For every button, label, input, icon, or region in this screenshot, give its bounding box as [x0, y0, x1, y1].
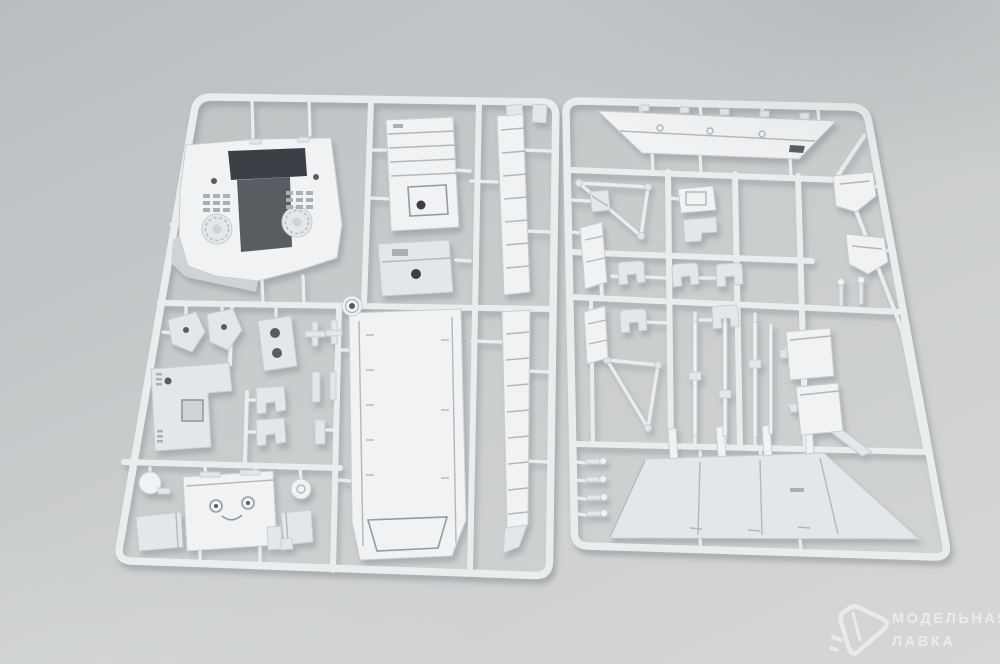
engine-deck-part: [386, 117, 459, 231]
hull-opening: [228, 148, 307, 180]
vent-grid-left: [203, 194, 230, 212]
photo-of-model-kit-sprues: МОДЕЛЬНАЯ ЛАВКА: [0, 0, 1000, 664]
watermark-line1: МОДЕЛЬНАЯ: [892, 611, 1000, 627]
watermark-line2: ЛАВКА: [892, 634, 955, 650]
junction-box-part: [590, 190, 610, 212]
watermark: МОДЕЛЬНАЯ ЛАВКА: [831, 606, 1000, 653]
left-sprue: [119, 97, 556, 576]
corner-block-part: [532, 104, 547, 123]
access-panel-part: [378, 240, 453, 296]
scene-canvas: МОДЕЛЬНАЯ ЛАВКА: [0, 0, 1000, 664]
vent-grid-right: [286, 191, 313, 209]
paper-plane-icon: [831, 606, 887, 653]
hull-bottom-part: [349, 309, 466, 560]
right-sprue: [566, 101, 946, 557]
fan-grille-right: [282, 207, 312, 237]
sprue-hub: [342, 296, 362, 316]
fan-grille-left: [202, 214, 232, 244]
wheel-disc-part: [291, 479, 311, 499]
hinge-bracket-part: [258, 316, 297, 371]
